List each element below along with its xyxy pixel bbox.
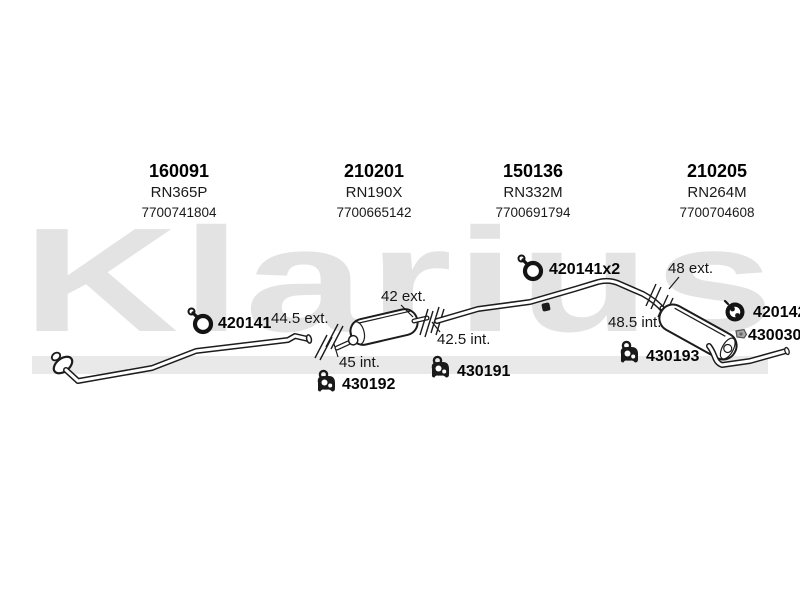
klarius-watermark: Klarius [22,198,777,363]
header-column-150136: 150136 RN332M 7700691794 [448,160,618,222]
part-ref: RN332M [448,183,618,203]
part-oem: 7700691794 [448,203,618,222]
label-front-clamp: 420141 [218,315,271,333]
part-oem: 7700704608 [632,203,800,222]
part-oem: 7700741804 [94,203,264,222]
header-column-160091: 160091 RN365P 7700741804 [94,160,264,222]
label-rear-olive: 430030 [748,327,800,345]
part-oem: 7700665142 [289,203,459,222]
olive-icon-430030 [736,330,747,339]
label-front-pipe-ext: 44.5 ext. [271,310,329,327]
part-ref: RN365P [94,183,264,203]
header-column-210205: 210205 RN264M 7700704608 [632,160,800,222]
label-rear-ext: 48 ext. [668,260,713,277]
part-number: 210201 [289,160,459,183]
label-mid-mount: 430192 [342,376,395,394]
label-rear-int: 48.5 int. [608,314,661,331]
part-number: 210205 [632,160,800,183]
part-ref: RN190X [289,183,459,203]
label-front-pipe-int: 45 int. [339,354,380,371]
part-number: 150136 [448,160,618,183]
label-centre-clamps: 420141x2 [549,261,620,279]
exhaust-diagram-page: Klarius [0,0,800,600]
label-rear-mount: 430193 [646,348,699,366]
header-column-210201: 210201 RN190X 7700665142 [289,160,459,222]
part-ref: RN264M [632,183,800,203]
label-mid-outlet-ext: 42 ext. [381,288,426,305]
label-centre-mount: 430191 [457,363,510,381]
label-rear-clamp: 420142 [753,304,800,322]
label-mid-outlet-int: 42.5 int. [437,331,490,348]
part-number: 160091 [94,160,264,183]
